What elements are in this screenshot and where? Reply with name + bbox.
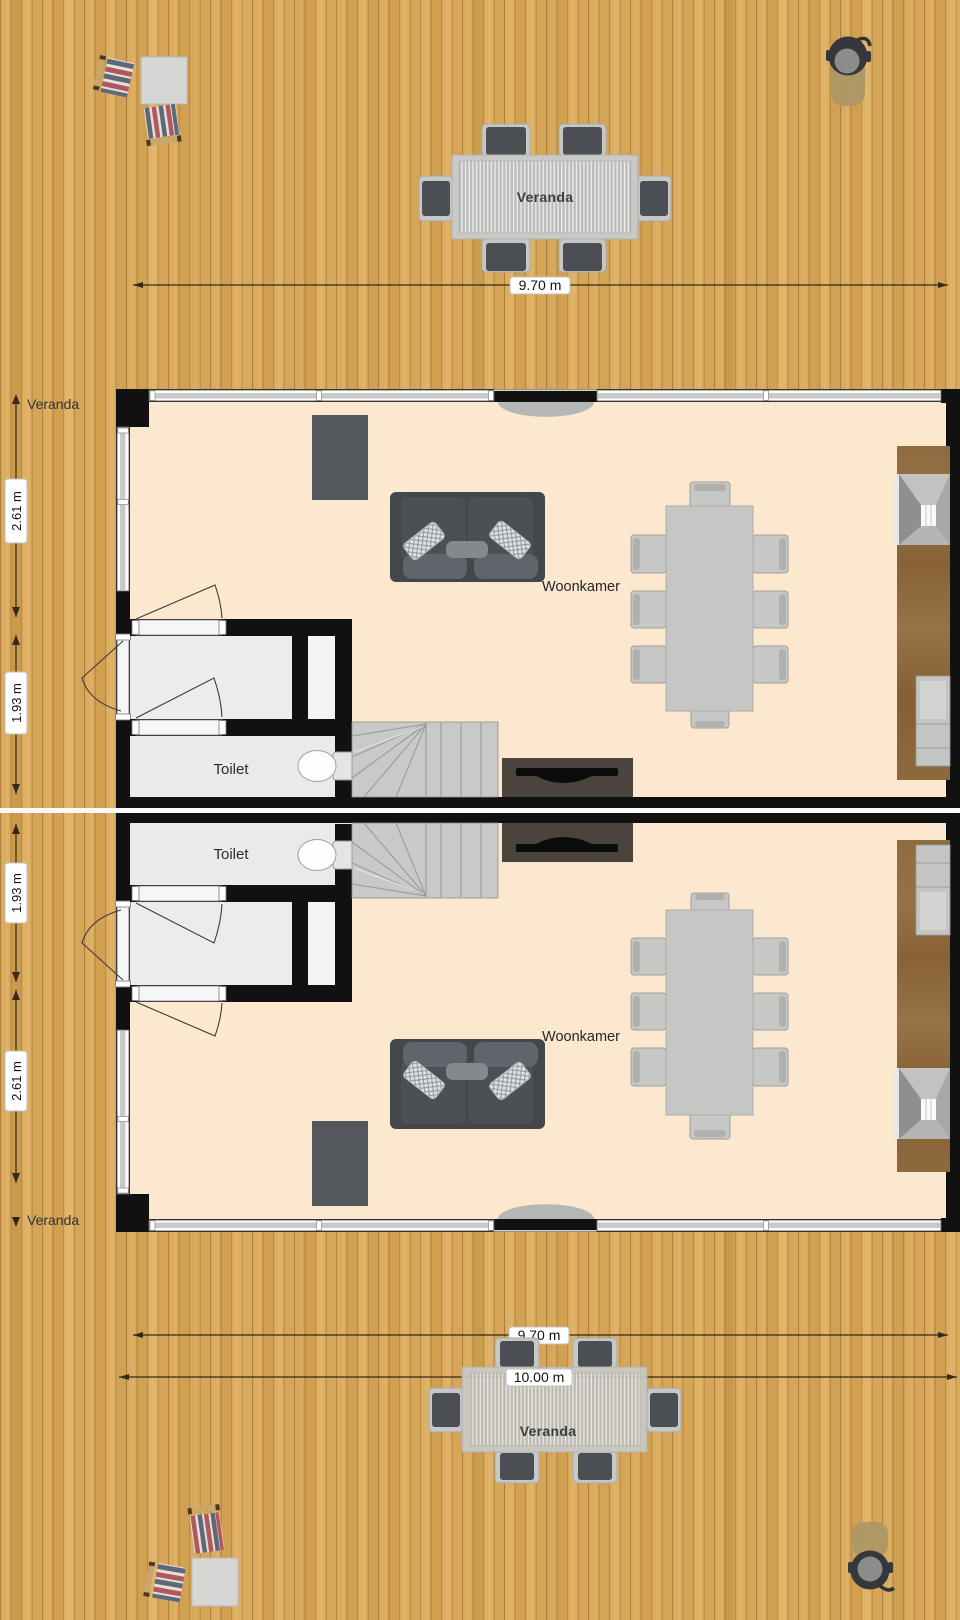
svg-text:Toilet: Toilet [213, 761, 249, 778]
svg-text:10.00 m: 10.00 m [514, 1369, 565, 1385]
svg-text:Toilet: Toilet [213, 846, 249, 863]
svg-text:2.61 m: 2.61 m [9, 1061, 24, 1101]
svg-text:Veranda: Veranda [520, 1423, 577, 1439]
svg-text:2.61 m: 2.61 m [9, 491, 24, 531]
svg-text:Veranda: Veranda [517, 189, 574, 205]
svg-text:Veranda: Veranda [27, 396, 79, 412]
svg-text:1.93 m: 1.93 m [9, 683, 24, 723]
svg-text:Woonkamer: Woonkamer [542, 1029, 620, 1045]
svg-text:1.93 m: 1.93 m [9, 873, 24, 913]
svg-text:Woonkamer: Woonkamer [542, 579, 620, 595]
svg-text:Veranda: Veranda [27, 1212, 79, 1228]
svg-text:9.70 m: 9.70 m [519, 277, 562, 293]
